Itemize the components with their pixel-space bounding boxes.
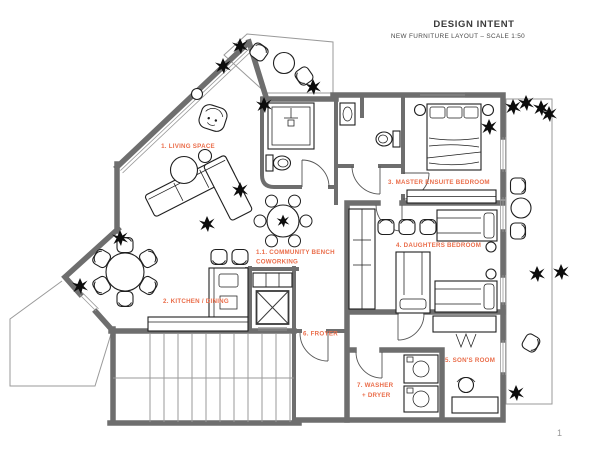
page-title: DESIGN INTENT: [433, 19, 514, 30]
room-label-master-ensuite-bedroom: 3. MASTER ENSUITE BEDROOM: [388, 179, 490, 186]
bottom-left-balcony-outline: [10, 281, 111, 386]
page-number: 1: [557, 428, 562, 438]
floor-plan-sheet: DESIGN INTENT NEW FURNITURE LAYOUT – SCA…: [0, 0, 600, 460]
elevator: [257, 291, 289, 330]
kitchen-counter: [148, 250, 248, 332]
side-table: [192, 89, 203, 100]
room-label-foyer: 6. FROYER: [303, 331, 338, 338]
washer-dryer-unit: [404, 355, 438, 412]
ensuite-bathroom-fixtures: [340, 103, 400, 147]
community-table-set: [254, 195, 312, 247]
room-label-sons-room: 5. SON'S ROOM: [445, 357, 495, 364]
community-bench: [253, 273, 292, 287]
room-label-kitchen-dining: 2. KITCHEN / DINING: [163, 298, 229, 305]
master-wardrobe: [407, 190, 496, 203]
room-label-community-bench-line1: 1.1. COMMUNITY BENCH: [256, 249, 335, 256]
master-bed: [415, 104, 494, 170]
room-label-washer-dryer-line2: + DRYER: [362, 392, 391, 399]
page-subtitle: NEW FURNITURE LAYOUT – SCALE 1:50: [391, 33, 525, 40]
room-label-community-bench-line2: COWORKING: [256, 259, 298, 266]
armchair: [197, 103, 229, 134]
balcony-furniture: [511, 178, 542, 354]
room-label-living-space: 1. LIVING SPACE: [161, 143, 215, 150]
floor-plan: DESIGN INTENT NEW FURNITURE LAYOUT – SCA…: [0, 0, 600, 460]
right-balcony-outline: [506, 99, 552, 404]
room-label-daughters-bedroom: 4. DAUGHTERS BEDROOM: [396, 242, 481, 249]
sofa: [144, 155, 252, 251]
title-block: DESIGN INTENT NEW FURNITURE LAYOUT – SCA…: [391, 19, 525, 40]
stairs: [113, 334, 294, 422]
daughters-furniture: [349, 209, 497, 313]
room-label-washer-dryer-line1: 7. WASHER: [357, 382, 394, 389]
